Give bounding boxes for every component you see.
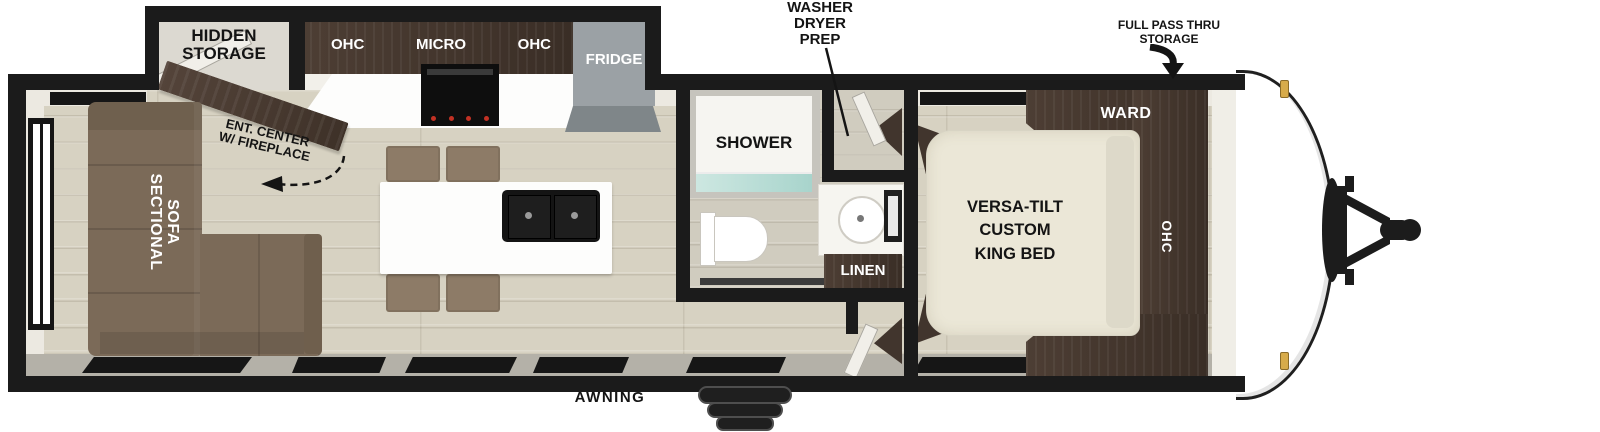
wall-closet-bottom [822, 170, 916, 182]
wall-entry-stub [846, 300, 858, 334]
washer-line1: WASHER [768, 0, 872, 16]
sink-basin-right [554, 195, 597, 239]
ohc-right-label: OHC [518, 37, 551, 53]
ward-label: WARD [1056, 106, 1196, 123]
cooktop [421, 64, 499, 126]
mirror [884, 190, 902, 242]
wall-top-left [8, 74, 145, 90]
clearance-light-bottom [1280, 352, 1289, 370]
sectional-sofa-armrest [304, 234, 322, 354]
washer-line2: DRYER [768, 16, 872, 32]
sectional-sofa-label: SECTIONAL SOFA [133, 147, 193, 297]
ent-center-swing-arrow [248, 150, 352, 200]
fridge-label: FRIDGE [573, 52, 655, 68]
wall-rear [8, 74, 26, 392]
full-pass-thru-label: FULL PASS THRU STORAGE [1104, 18, 1234, 47]
shower-label: SHOWER [688, 134, 820, 152]
wall-bumpout-left [145, 6, 159, 90]
hidden-storage-line1: HIDDEN [155, 27, 293, 45]
kitchen-cabinet-labels: OHC MICRO OHC [301, 32, 575, 58]
wall-bath-bottom [676, 288, 916, 302]
hidden-storage-label: HIDDEN STORAGE [155, 27, 293, 63]
wall-hidden-storage-divider [289, 6, 305, 90]
sofa-label-line2: SOFA [163, 199, 180, 245]
wall-bedroom [904, 74, 918, 376]
wall-bath-left [676, 88, 690, 302]
living-bottom-window-3 [405, 357, 517, 373]
linen-label: LINEN [824, 263, 902, 279]
bed-label: VERSA-TILT CUSTOM KING BED [933, 196, 1097, 266]
bed-label-line3: KING BED [975, 243, 1056, 266]
living-bottom-window-2 [292, 357, 386, 373]
bedroom-ohc-label: OHC [1159, 221, 1173, 254]
living-bottom-window-4 [533, 357, 629, 373]
full-pass-thru-arrow [1144, 44, 1192, 80]
bedroom-ohc-label-wrap: OHC [1157, 209, 1175, 265]
sink-basin-left [508, 195, 551, 239]
sofa-label-line1: SECTIONAL [146, 174, 163, 271]
wall-bumpout-top [145, 6, 659, 22]
island-chair-3 [386, 274, 440, 312]
shower-door-track [700, 278, 824, 285]
hidden-storage-line2: STORAGE [155, 45, 293, 63]
bed-headboard [1106, 136, 1134, 328]
washer-dryer-leader-line [818, 46, 854, 138]
clearance-light-top [1280, 80, 1289, 98]
ohc-left-label: OHC [331, 37, 364, 53]
vanity-sink [838, 196, 886, 244]
entry-steps [698, 386, 792, 432]
hitch-tongue-graphic [1318, 168, 1428, 294]
full-pass-line1: FULL PASS THRU [1104, 18, 1234, 32]
island-sink [502, 190, 600, 242]
bed-label-line2: CUSTOM [979, 219, 1050, 242]
shower-glass [696, 172, 812, 192]
rear-window [28, 118, 54, 330]
floorplan-stage: HIDDEN STORAGE OHC MICRO OHC FRIDGE ENT.… [0, 0, 1600, 432]
island-chair-4 [446, 274, 500, 312]
living-bottom-window-1 [82, 357, 252, 373]
entry-door [686, 357, 786, 373]
island-chair-2 [446, 146, 500, 182]
bed-label-line1: VERSA-TILT [967, 196, 1063, 219]
fridge-front-face [565, 106, 661, 132]
awning-label: AWNING [560, 390, 660, 406]
washer-dryer-prep-label: WASHER DRYER PREP [768, 0, 872, 48]
micro-label: MICRO [416, 37, 466, 53]
sectional-sofa-seat-front [100, 332, 304, 354]
island-chair-1 [386, 146, 440, 182]
toilet-bowl [714, 216, 768, 262]
cooktop-knobs [425, 114, 495, 122]
